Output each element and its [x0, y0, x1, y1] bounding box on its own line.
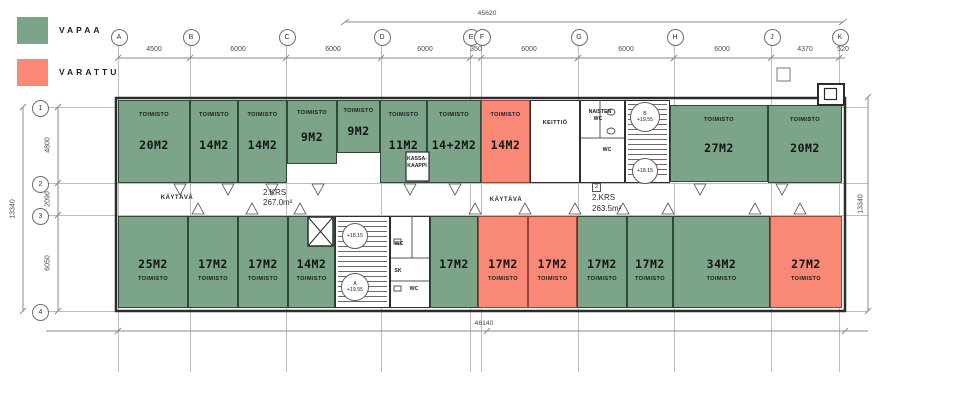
- room-office-17-3[interactable]: 17M2: [430, 216, 478, 308]
- room-size-label: 14M2: [289, 257, 334, 271]
- dim-total-top: 45620: [478, 10, 497, 17]
- floor-plan: VAPAA VARATTU: [0, 0, 960, 410]
- level-marker-0: B+19.55: [630, 102, 660, 132]
- dim-span-col-4: 350: [470, 46, 482, 53]
- level-marker-text: +18.15: [347, 233, 363, 239]
- room-size-label: 14M2: [191, 138, 237, 152]
- grid-line-row-4: [48, 311, 868, 312]
- grid-line-col-D: [381, 44, 382, 372]
- dim-span-col-8: 4370: [797, 46, 813, 53]
- corridor-label-0: KÄYTÄVÄ: [161, 195, 194, 201]
- grid-line-row-2: [48, 183, 868, 184]
- grid-bubble-col-C: C: [279, 29, 296, 46]
- room-office-14-3[interactable]: TOIMISTO14M2: [481, 100, 530, 183]
- grid-bubble-row-3: 3: [32, 208, 49, 225]
- room-size-label: 17M2: [529, 257, 576, 271]
- dim-span-row-0: 4800: [45, 137, 52, 153]
- room-type-label: TOIMISTO: [529, 276, 576, 282]
- room-office-17-4[interactable]: TOIMISTO17M2: [478, 216, 528, 308]
- grid-line-col-E: [470, 44, 471, 372]
- room-type-label: TOIMISTO: [191, 112, 237, 118]
- legend-label-vapaa: VAPAA: [59, 25, 103, 35]
- room-office-27-1[interactable]: TOIMISTO27M2: [670, 105, 768, 182]
- dim-total-left: 13340: [10, 199, 17, 218]
- room-office-14-2[interactable]: TOIMISTO14M2: [238, 100, 287, 183]
- room-office-20-1[interactable]: TOIMISTO20M2: [118, 100, 190, 183]
- room-type-label: TOIMISTO: [428, 112, 480, 118]
- grid-bubble-col-D: D: [374, 29, 391, 46]
- room-office-14plus2[interactable]: TOIMISTO14+2M2: [427, 100, 481, 183]
- floor-area-1: 22.KRS263.5m²: [592, 183, 621, 214]
- small-label-1-wc: WC: [594, 116, 603, 122]
- room-office-11[interactable]: TOIMISTO11M2: [380, 100, 427, 183]
- small-label-6-sk: SK: [394, 268, 401, 274]
- room-type-label: TOIMISTO: [239, 276, 287, 282]
- room-type-label: TOIMISTO: [288, 110, 336, 116]
- room-type-label: TOIMISTO: [381, 112, 426, 118]
- room-size-label: 27M2: [671, 141, 767, 155]
- grid-line-col-J: [771, 44, 772, 372]
- small-label-5-wc: WC: [395, 241, 404, 247]
- floor-title: 2.KRS: [592, 193, 621, 203]
- grid-line-col-B: [190, 44, 191, 372]
- plan-decor: [0, 0, 960, 410]
- room-type-label: TOIMISTO: [578, 276, 626, 282]
- dim-span-col-0: 4500: [146, 46, 162, 53]
- dim-span-col-5: 6000: [521, 46, 537, 53]
- room-type-label: TOIMISTO: [338, 108, 379, 114]
- floor-tag: 2: [592, 183, 601, 192]
- grid-bubble-row-1: 1: [32, 100, 49, 117]
- roof-hatch-shaft: [818, 84, 844, 105]
- legend-item-varattu: VARATTU: [17, 58, 119, 86]
- room-type-label: TOIMISTO: [671, 117, 767, 123]
- dim-span-col-9: 520: [837, 46, 849, 53]
- dim-span-col-3: 6000: [417, 46, 433, 53]
- grid-line-col-G: [578, 44, 579, 372]
- level-marker-text: +19.55: [347, 287, 363, 293]
- room-size-label: 14+2M2: [428, 138, 480, 152]
- small-label-4-kaappi: KAAPPI: [407, 163, 427, 169]
- small-label-7-wc: WC: [410, 286, 419, 292]
- dim-span-col-2: 6000: [325, 46, 341, 53]
- room-size-label: 17M2: [239, 257, 287, 271]
- grid-bubble-col-H: H: [667, 29, 684, 46]
- level-marker-1: +18.15: [632, 158, 658, 184]
- exterior-detail-square: [777, 68, 790, 81]
- room-size-label: 25M2: [119, 257, 187, 271]
- room-size-label: 14M2: [482, 138, 529, 152]
- room-type-label: TOIMISTO: [239, 112, 286, 118]
- legend: VAPAA VARATTU: [17, 16, 119, 100]
- grid-bubble-col-B: B: [183, 29, 200, 46]
- room-office-14-4[interactable]: TOIMISTO14M2: [288, 216, 335, 308]
- room-size-label: 27M2: [771, 257, 841, 271]
- small-label-3-kassa: KASSA-: [407, 156, 427, 162]
- room-type-label: TOIMISTO: [482, 112, 529, 118]
- room-type-label: TOIMISTO: [119, 276, 187, 282]
- grid-bubble-col-F: F: [474, 29, 491, 46]
- grid-bubble-col-J: J: [764, 29, 781, 46]
- room-size-label: 20M2: [119, 138, 189, 152]
- level-marker-2: +18.15: [342, 223, 368, 249]
- room-type-label: TOIMISTO: [189, 276, 237, 282]
- room-office-17-2[interactable]: TOIMISTO17M2: [238, 216, 288, 308]
- grid-bubble-col-G: G: [571, 29, 588, 46]
- dim-span-row-2: 6050: [45, 255, 52, 271]
- room-size-label: 20M2: [769, 141, 841, 155]
- room-type-label: KEITTIÖ: [531, 120, 579, 126]
- room-office-20-2[interactable]: TOIMISTO20M2: [768, 105, 842, 183]
- room-office-25[interactable]: TOIMISTO25M2: [118, 216, 188, 308]
- corridor-label-1: KÄYTÄVÄ: [490, 197, 523, 203]
- grid-line-col-H: [674, 44, 675, 372]
- legend-item-vapaa: VAPAA: [17, 16, 119, 44]
- small-label-2-wc: WC: [603, 147, 612, 153]
- room-type-label: TOIMISTO: [771, 276, 841, 282]
- dim-span-col-7: 6000: [714, 46, 730, 53]
- room-office-34[interactable]: TOIMISTO34M2: [673, 216, 770, 308]
- grid-line-col-K: [839, 44, 840, 372]
- room-office-17-7[interactable]: TOIMISTO17M2: [627, 216, 673, 308]
- floor-title: 2.KRS: [263, 188, 292, 198]
- room-size-label: 17M2: [431, 257, 477, 271]
- room-size-label: 11M2: [381, 138, 426, 152]
- room-office-14-1[interactable]: TOIMISTO14M2: [190, 100, 238, 183]
- floor-area-value: 263.5m²: [592, 204, 621, 214]
- room-size-label: 9M2: [338, 124, 379, 138]
- legend-swatch-varattu: [17, 59, 48, 86]
- dim-total-right: 13340: [858, 194, 865, 213]
- room-office-27-2[interactable]: TOIMISTO27M2: [770, 216, 842, 308]
- dim-total-bottom: 46140: [475, 320, 494, 327]
- room-type-label: TOIMISTO: [674, 276, 769, 282]
- level-marker-3: A+19.55: [341, 273, 369, 301]
- room-office-17-5[interactable]: TOIMISTO17M2: [528, 216, 577, 308]
- dim-span-col-1: 6000: [230, 46, 246, 53]
- floor-area-0: 2.KRS267.0m²: [263, 188, 292, 209]
- room-keittio: KEITTIÖ: [530, 100, 580, 183]
- room-office-9-1[interactable]: TOIMISTO9M2: [287, 100, 337, 164]
- level-marker-text: +19.55: [637, 117, 653, 123]
- small-label-0-naisten: NAISTEN: [589, 109, 612, 115]
- room-wc-block: [390, 216, 430, 308]
- room-type-label: TOIMISTO: [479, 276, 527, 282]
- grid-bubble-row-4: 4: [32, 304, 49, 321]
- legend-swatch-vapaa: [17, 17, 48, 44]
- dim-span-row-1: 2090: [45, 191, 52, 207]
- room-size-label: 17M2: [578, 257, 626, 271]
- room-type-label: TOIMISTO: [119, 112, 189, 118]
- room-size-label: 14M2: [239, 138, 286, 152]
- room-office-17-6[interactable]: TOIMISTO17M2: [577, 216, 627, 308]
- level-marker-text: +18.15: [637, 168, 653, 174]
- room-size-label: 34M2: [674, 257, 769, 271]
- room-size-label: 17M2: [479, 257, 527, 271]
- room-type-label: TOIMISTO: [628, 276, 672, 282]
- room-size-label: 17M2: [189, 257, 237, 271]
- room-size-label: 17M2: [628, 257, 672, 271]
- grid-bubble-col-K: K: [832, 29, 849, 46]
- room-size-label: 9M2: [288, 130, 336, 144]
- room-type-label: TOIMISTO: [769, 117, 841, 123]
- legend-label-varattu: VARATTU: [59, 67, 119, 77]
- dim-span-col-6: 6000: [618, 46, 634, 53]
- room-office-9-2[interactable]: TOIMISTO9M2: [337, 100, 380, 153]
- room-office-17-1[interactable]: TOIMISTO17M2: [188, 216, 238, 308]
- room-type-label: TOIMISTO: [289, 276, 334, 282]
- floor-area-value: 267.0m²: [263, 198, 292, 208]
